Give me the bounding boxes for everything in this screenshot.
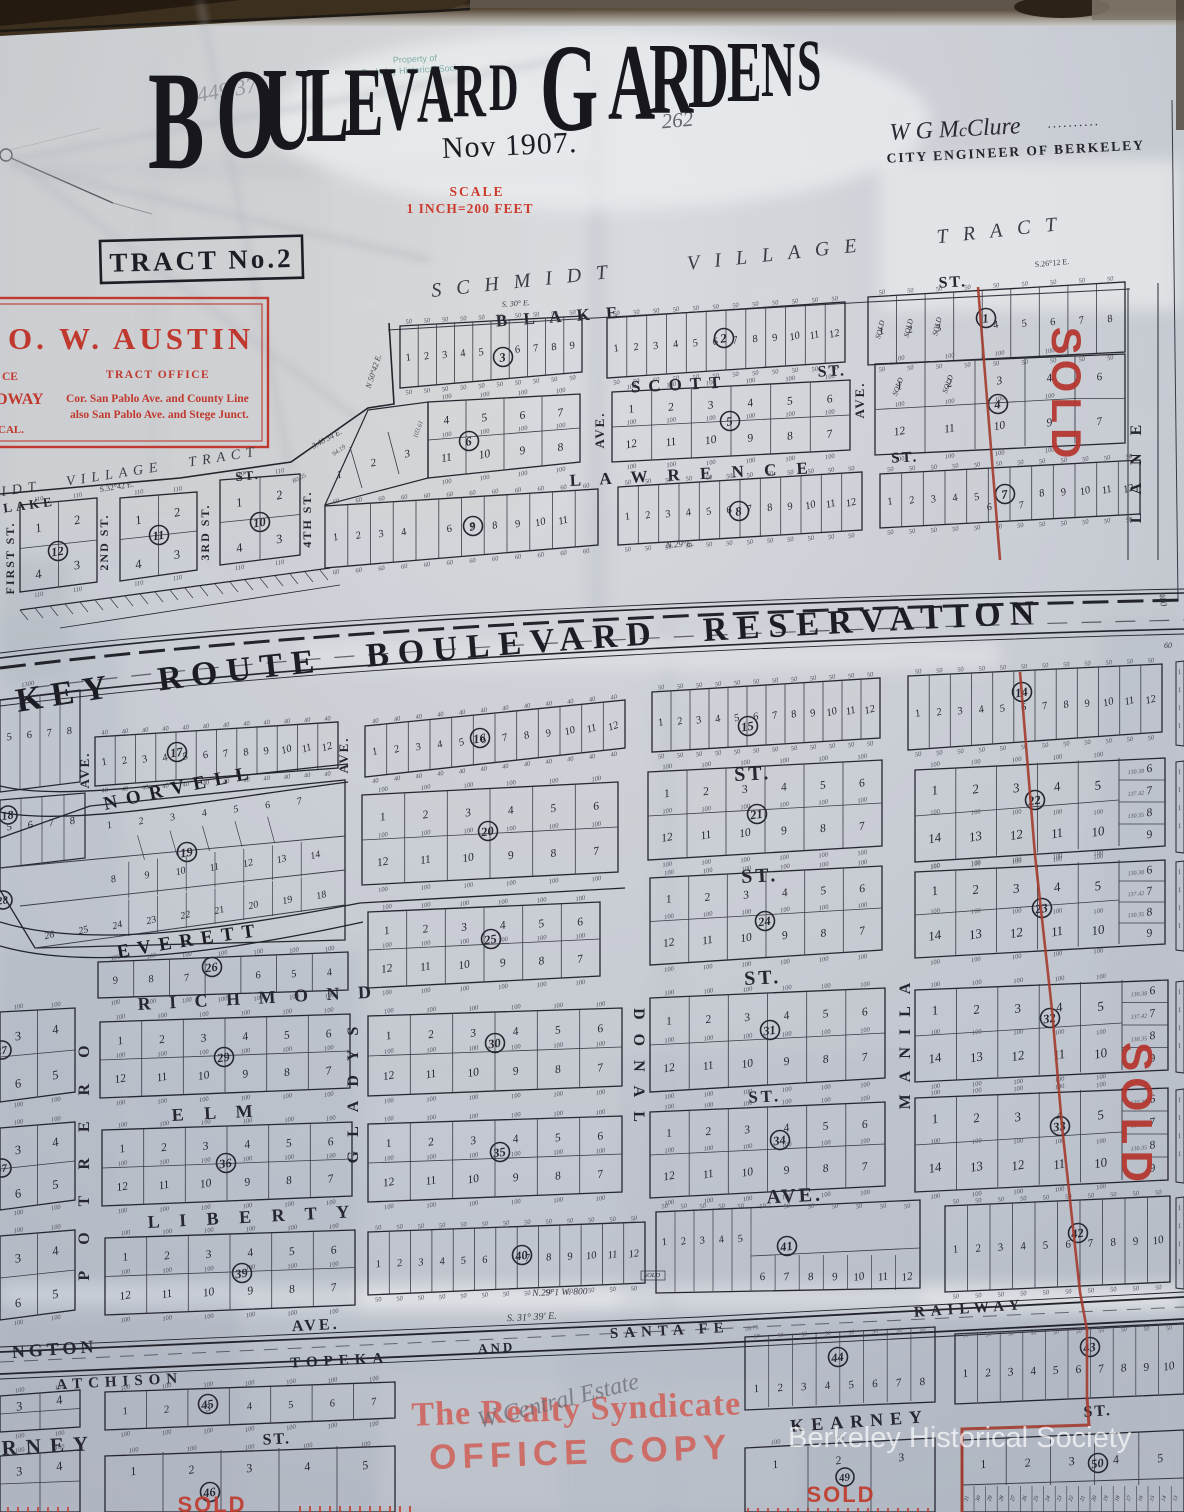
svg-text:11: 11 — [1050, 923, 1064, 940]
svg-text:N.29°1 W. 800: N.29°1 W. 800 — [531, 1286, 588, 1299]
svg-text:S: S — [797, 26, 821, 107]
svg-text:50: 50 — [801, 1332, 808, 1339]
svg-text:11: 11 — [702, 1059, 715, 1073]
svg-text:12: 12 — [382, 1069, 396, 1083]
svg-text:26: 26 — [203, 960, 219, 976]
svg-text:30: 30 — [486, 1036, 502, 1052]
svg-text:12: 12 — [662, 1061, 676, 1075]
svg-text:50: 50 — [848, 1330, 855, 1337]
svg-text:N.29°E.: N.29°E. — [664, 538, 694, 550]
svg-text:R: R — [649, 23, 694, 136]
svg-text:18: 18 — [1, 808, 15, 824]
svg-text:also San Pablo Ave. and Stege: also San Pablo Ave. and Stege Junct. — [70, 409, 249, 421]
svg-text:10: 10 — [993, 419, 1007, 433]
svg-text:50: 50 — [962, 1333, 969, 1340]
svg-text:12: 12 — [662, 1170, 676, 1184]
svg-text:Nov 1907.: Nov 1907. — [441, 126, 578, 165]
svg-text:V: V — [379, 49, 418, 150]
svg-text:11: 11 — [877, 1270, 889, 1284]
svg-text:10: 10 — [741, 1166, 755, 1180]
svg-text:31: 31 — [761, 1023, 776, 1039]
svg-text:ST.: ST. — [938, 273, 967, 291]
svg-text:AVE.: AVE. — [336, 736, 351, 773]
svg-text:12: 12 — [660, 831, 674, 845]
svg-text:RNEY: RNEY — [1, 1431, 98, 1460]
svg-text:50: 50 — [1030, 1330, 1037, 1337]
svg-text:40: 40 — [513, 1248, 529, 1264]
svg-text:11: 11 — [607, 1249, 618, 1261]
svg-text:11: 11 — [152, 528, 166, 544]
svg-text:15: 15 — [740, 719, 754, 735]
svg-text:10: 10 — [457, 958, 471, 972]
svg-text:11: 11 — [425, 1174, 438, 1188]
svg-text:11: 11 — [700, 829, 713, 843]
svg-text:50: 50 — [1098, 1328, 1105, 1335]
svg-text:ST.: ST. — [262, 1430, 291, 1448]
svg-text:50: 50 — [896, 1328, 903, 1335]
svg-text:SCALE: SCALE — [449, 184, 504, 199]
svg-text:10: 10 — [478, 448, 492, 462]
svg-text:SOLD: SOLD — [1112, 1042, 1161, 1188]
svg-text:FIRST ST.: FIRST ST. — [3, 522, 17, 595]
svg-text:DONAL: DONAL — [630, 1008, 647, 1136]
svg-text:50: 50 — [824, 1331, 831, 1338]
svg-text:11: 11 — [943, 422, 956, 436]
svg-text:35: 35 — [491, 1145, 506, 1161]
svg-text:10: 10 — [1162, 1360, 1176, 1374]
svg-text:11: 11 — [425, 1068, 438, 1082]
svg-text:..........: .......... — [1047, 113, 1100, 131]
svg-text:ST.: ST. — [235, 467, 261, 484]
svg-text:ST.: ST. — [748, 1086, 782, 1107]
svg-text:12: 12 — [116, 1180, 130, 1194]
svg-text:11: 11 — [701, 934, 714, 948]
svg-text:44: 44 — [829, 1350, 844, 1366]
svg-text:Berkeley Historical Society: Berkeley Historical Society — [788, 1422, 1132, 1454]
svg-text:10: 10 — [704, 434, 718, 448]
svg-text:22: 22 — [1026, 793, 1041, 809]
svg-text:SOLD: SOLD — [806, 1482, 875, 1507]
svg-text:TRACT No.2: TRACT No.2 — [109, 243, 294, 278]
svg-text:50: 50 — [1143, 1326, 1150, 1333]
svg-text:E: E — [344, 46, 384, 156]
svg-text:10: 10 — [738, 826, 752, 840]
svg-text:D: D — [688, 23, 729, 127]
svg-text:SOLD: SOLD — [1043, 327, 1090, 464]
svg-text:CE: CE — [2, 371, 18, 383]
svg-text:11: 11 — [419, 853, 432, 867]
svg-text:11: 11 — [440, 451, 453, 465]
svg-text:43: 43 — [1081, 1340, 1096, 1356]
svg-text:4TH ST.: 4TH ST. — [300, 490, 314, 547]
svg-text:50: 50 — [777, 1333, 784, 1340]
svg-text:12: 12 — [50, 544, 64, 560]
svg-text:AVE.: AVE. — [291, 1316, 340, 1335]
svg-text:L: L — [306, 46, 349, 165]
svg-text:10: 10 — [467, 1173, 481, 1187]
svg-text:11: 11 — [702, 1168, 715, 1182]
svg-text:50: 50 — [1121, 1327, 1128, 1334]
svg-text:24: 24 — [756, 914, 771, 930]
svg-text:12: 12 — [119, 1289, 133, 1303]
svg-text:POTRERO: POTRERO — [76, 1019, 93, 1280]
svg-text:12: 12 — [893, 425, 907, 439]
svg-text:A: A — [417, 47, 453, 140]
svg-text:34: 34 — [771, 1133, 786, 1149]
svg-text:50: 50 — [1075, 1329, 1082, 1336]
svg-text:12: 12 — [114, 1072, 128, 1086]
svg-text:AND: AND — [478, 1339, 516, 1356]
svg-text:60: 60 — [1164, 641, 1172, 650]
svg-text:137.42: 137.42 — [1127, 790, 1144, 798]
svg-text:2ND ST.: 2ND ST. — [97, 513, 111, 570]
svg-text:10: 10 — [739, 931, 753, 945]
svg-text:36: 36 — [217, 1156, 233, 1172]
svg-text:42: 42 — [1069, 1226, 1084, 1242]
svg-text:50: 50 — [1053, 1329, 1060, 1336]
svg-text:50: 50 — [985, 1332, 992, 1339]
svg-text:SOLD: SOLD — [177, 1492, 246, 1512]
svg-text:AVE.: AVE. — [592, 411, 607, 448]
svg-text:21: 21 — [748, 807, 763, 823]
svg-text:3RD ST.: 3RD ST. — [198, 503, 212, 560]
svg-text:12: 12 — [662, 936, 676, 950]
svg-text:TRACT OFFICE: TRACT OFFICE — [106, 369, 210, 381]
svg-text:50: 50 — [1166, 1325, 1173, 1332]
svg-text:45: 45 — [199, 1397, 214, 1413]
svg-text:LANE: LANE — [1128, 407, 1145, 523]
svg-text:12: 12 — [380, 962, 394, 976]
svg-text:10: 10 — [202, 1286, 216, 1300]
svg-text:11: 11 — [665, 436, 678, 450]
svg-text:12: 12 — [382, 1176, 396, 1190]
svg-text:137.42: 137.42 — [1127, 890, 1144, 898]
svg-text:39: 39 — [233, 1266, 249, 1282]
svg-text:AVE.: AVE. — [852, 381, 867, 418]
svg-text:E: E — [727, 23, 762, 120]
svg-text:11: 11 — [419, 960, 432, 974]
svg-text:1 INCH=200 FEET: 1 INCH=200 FEET — [407, 201, 534, 216]
svg-text:50: 50 — [753, 1334, 760, 1341]
svg-text:CAL.: CAL. — [0, 424, 24, 436]
svg-text:20: 20 — [479, 824, 495, 840]
svg-text:137.42: 137.42 — [1130, 1013, 1147, 1021]
svg-text:Cor. San Pablo Ave. and County: Cor. San Pablo Ave. and County Line — [66, 393, 249, 405]
svg-text:10: 10 — [199, 1177, 213, 1191]
svg-text:10: 10 — [741, 1057, 755, 1071]
svg-text:11: 11 — [158, 1179, 171, 1193]
svg-text:50: 50 — [1008, 1331, 1015, 1338]
svg-text:11: 11 — [1050, 825, 1064, 842]
svg-text:O. W. AUSTIN: O. W. AUSTIN — [8, 321, 254, 356]
svg-text:50: 50 — [919, 1327, 926, 1334]
svg-text:N: N — [761, 27, 795, 114]
svg-text:AVE.: AVE. — [77, 751, 92, 788]
svg-text:R: R — [453, 48, 486, 133]
svg-text:41: 41 — [778, 1239, 793, 1255]
svg-text:SOLD: SOLD — [644, 1272, 661, 1279]
svg-text:DWAY: DWAY — [0, 391, 44, 408]
svg-text:50: 50 — [872, 1329, 879, 1336]
svg-text:11: 11 — [156, 1071, 169, 1085]
svg-text:11: 11 — [161, 1288, 174, 1302]
svg-text:MANILA: MANILA — [897, 971, 914, 1110]
svg-text:12: 12 — [376, 855, 390, 869]
svg-text:12: 12 — [625, 438, 639, 452]
svg-text:10: 10 — [461, 851, 475, 865]
svg-text:29: 29 — [215, 1050, 231, 1066]
svg-text:B: B — [148, 43, 204, 199]
svg-text:33: 33 — [1051, 1119, 1066, 1135]
svg-text:10: 10 — [467, 1066, 481, 1080]
svg-text:D: D — [489, 51, 518, 126]
svg-text:GLADYS: GLADYS — [345, 1013, 362, 1164]
svg-text:10: 10 — [197, 1069, 211, 1083]
svg-text:A: A — [608, 23, 655, 143]
svg-text:25: 25 — [482, 932, 497, 948]
